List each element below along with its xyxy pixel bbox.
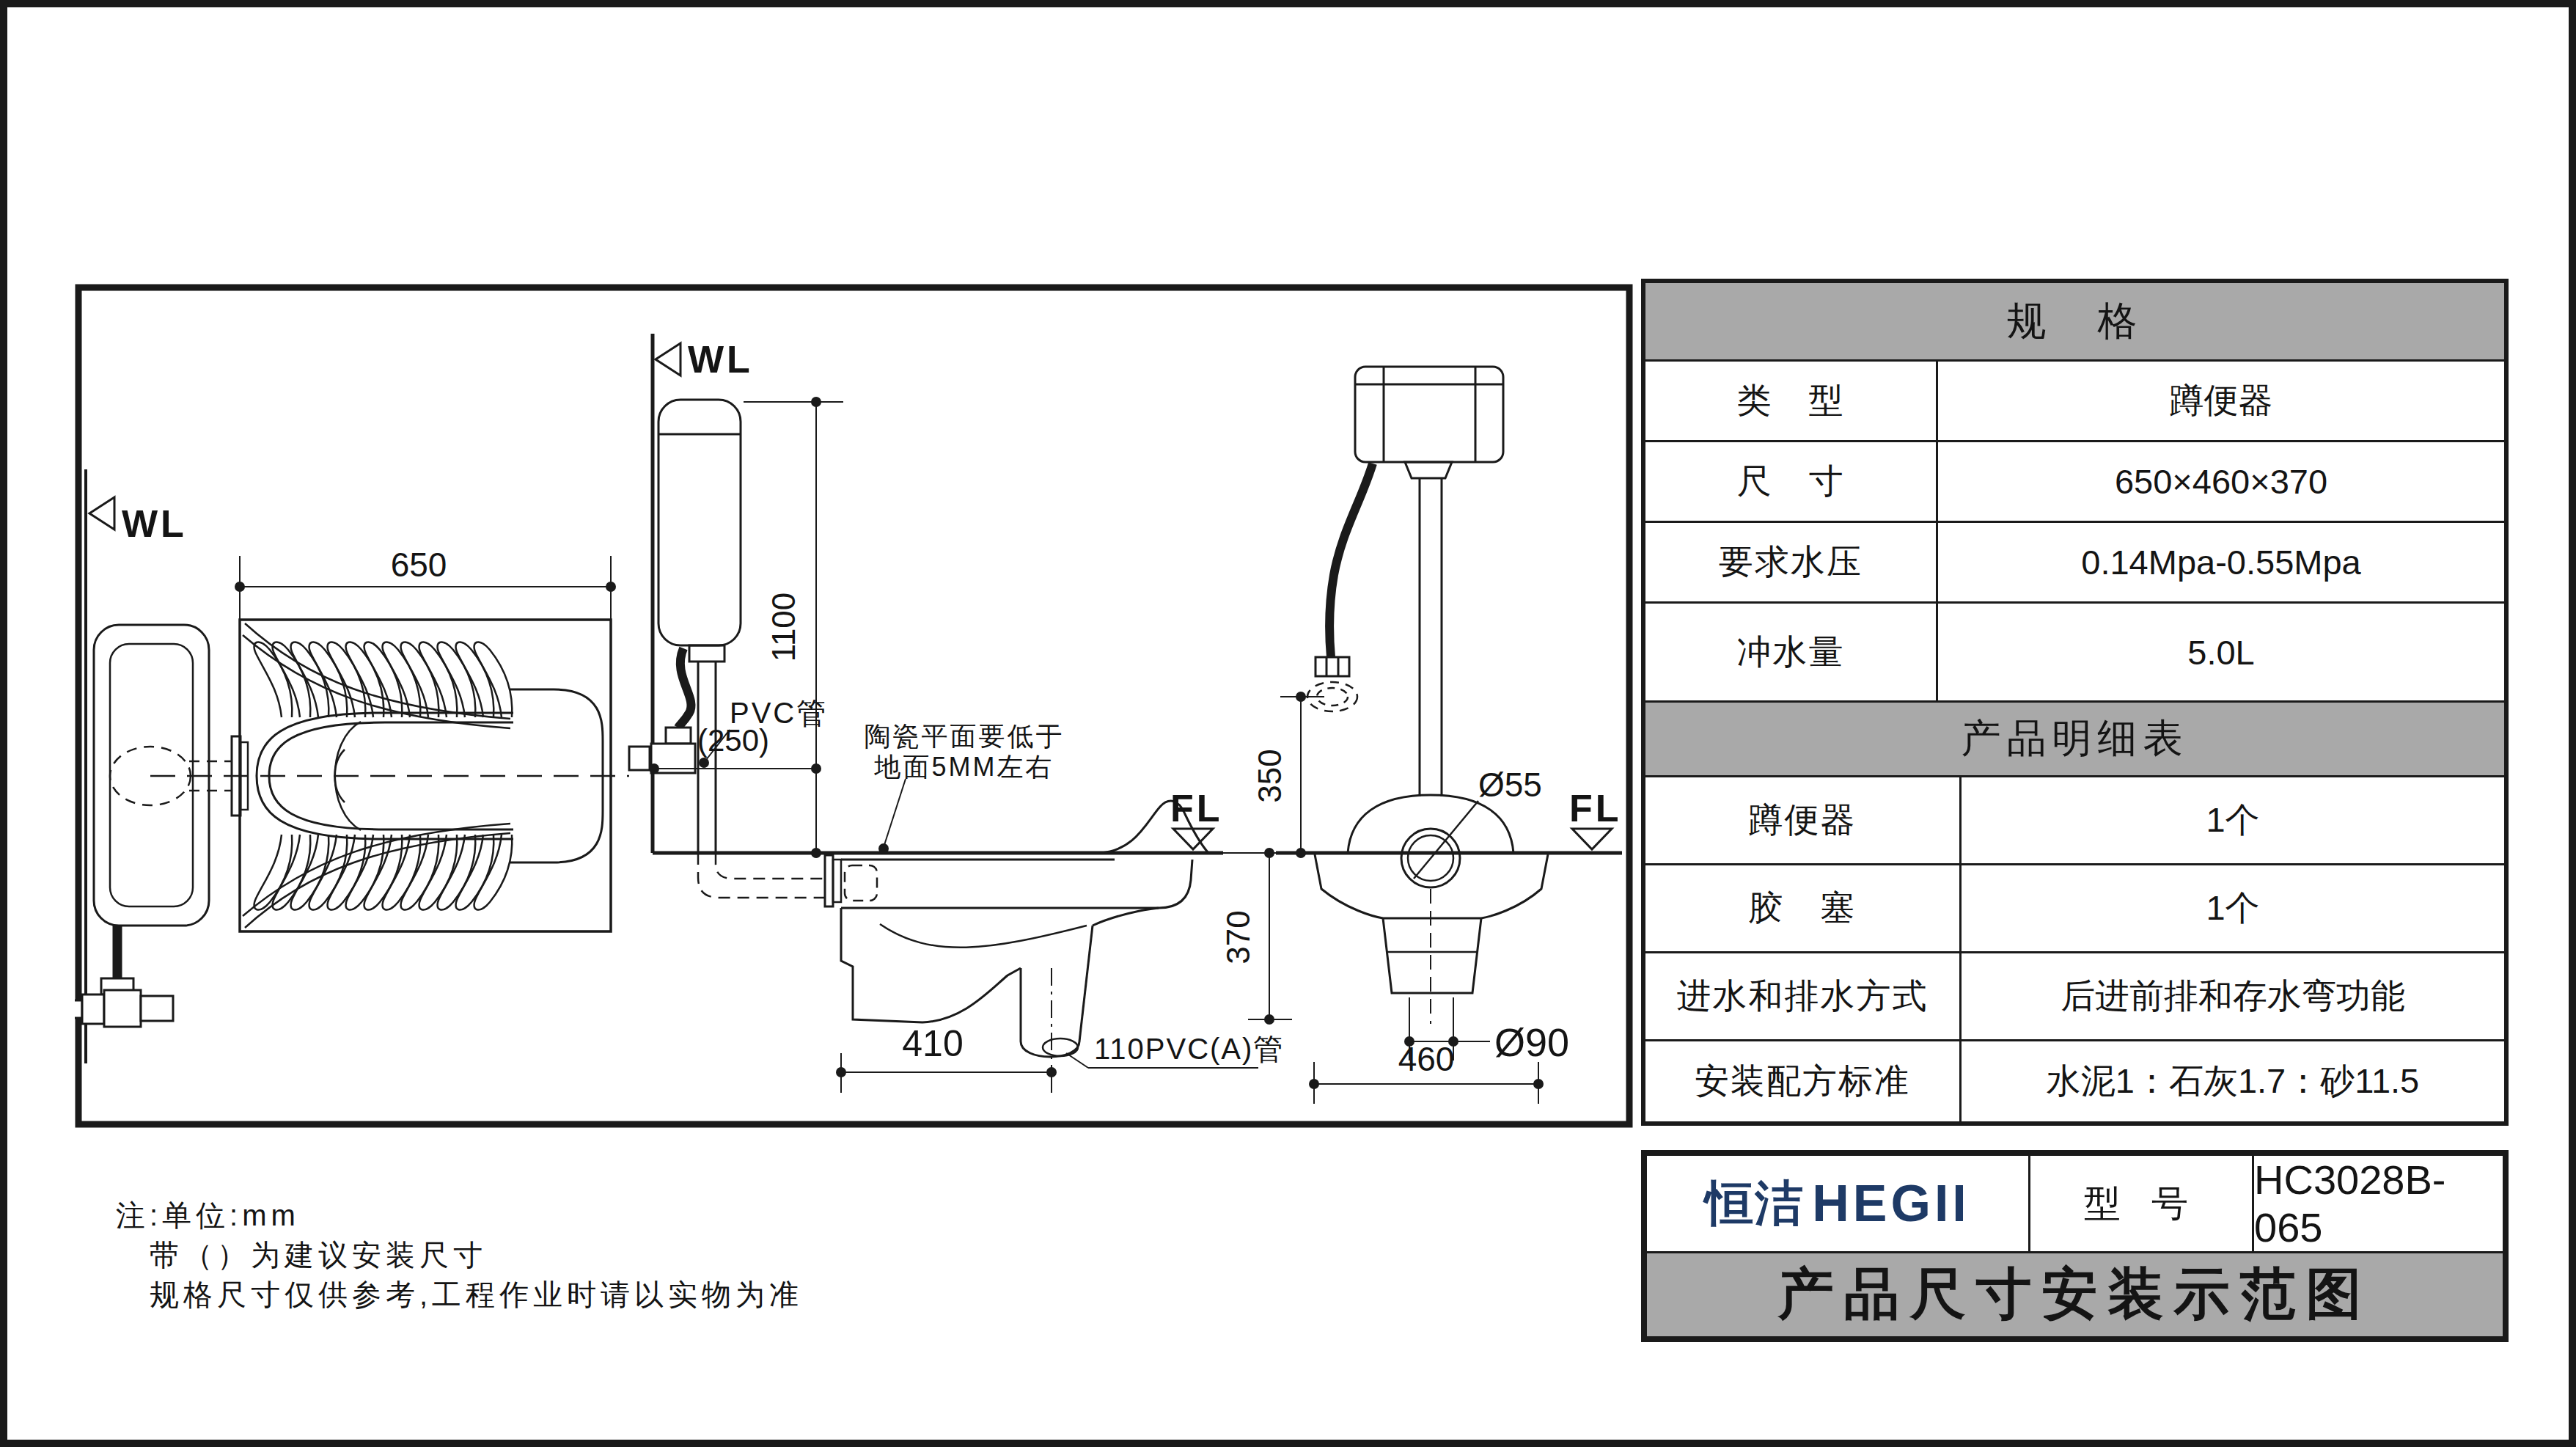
table-row: 尺 寸 650×460×370	[1645, 442, 2504, 523]
title-block: 恒洁 HEGII 型 号 HC3028B-065 产品尺寸安装示范图	[1641, 1150, 2509, 1342]
row-label: 尺 寸	[1645, 442, 1938, 521]
angle-valve-plan	[75, 926, 173, 1027]
spec-table-title: 规 格	[1645, 283, 2504, 362]
ceramic-leader	[884, 779, 906, 845]
wl-marker-icon	[89, 497, 114, 530]
parts-table-title: 产品明细表	[1645, 703, 2504, 777]
dim-90-text: Ø90	[1494, 1020, 1569, 1064]
dim-370-text: 370	[1220, 910, 1256, 964]
dim-1100-text: 1100	[766, 593, 801, 662]
model-number: HC3028B-065	[2254, 1156, 2503, 1251]
ceramic-note-line1: 陶瓷平面要低于	[865, 721, 1065, 751]
row-value: 0.14Mpa-0.55Mpa	[1938, 523, 2504, 601]
model-label: 型 号	[2030, 1156, 2254, 1251]
table-row: 冲水量 5.0L	[1645, 604, 2504, 703]
wl-marker-icon	[656, 343, 680, 376]
spec-table: 规 格 类 型 蹲便器 尺 寸 650×460×370 要求水压 0.14Mpa…	[1641, 279, 2509, 1126]
brand-logo-en: HEGII	[1812, 1174, 1970, 1233]
row-label: 安装配方标准	[1645, 1041, 1962, 1121]
note-line-1: 注:单位:mm	[116, 1195, 803, 1235]
wl-label-side: WL	[688, 338, 753, 381]
wl-label-plan: WL	[122, 502, 187, 545]
dim-650-text: 650	[391, 546, 447, 584]
table-row: 安装配方标准 水泥1：石灰1.7：砂11.5	[1645, 1041, 2504, 1121]
drawing-title: 产品尺寸安装示范图	[1647, 1253, 2503, 1336]
ceramic-note-line2: 地面5MM左右	[874, 752, 1054, 782]
table-row: 类 型 蹲便器	[1645, 362, 2504, 442]
page: WL WL FL FL 650 1100 (250) 350 370 410 4…	[0, 0, 2576, 1447]
row-value: 5.0L	[1938, 604, 2504, 700]
side-view	[629, 334, 1292, 1093]
row-value: 650×460×370	[1938, 442, 2504, 521]
fl-label-side: FL	[1170, 787, 1223, 829]
fl-label-front: FL	[1569, 787, 1622, 829]
row-label: 类 型	[1645, 362, 1938, 440]
front-view	[1276, 367, 1622, 1104]
row-label: 进水和排水方式	[1645, 953, 1962, 1039]
table-row: 蹲便器 1个	[1645, 777, 2504, 865]
row-label: 胶 塞	[1645, 865, 1962, 951]
row-value: 水泥1：石灰1.7：砂11.5	[1962, 1041, 2504, 1121]
pan-front	[1315, 854, 1548, 1024]
brand-logo-cn: 恒洁	[1705, 1171, 1805, 1237]
table-row: 要求水压 0.14Mpa-0.55Mpa	[1645, 523, 2504, 604]
dim-350-text: 350	[1252, 749, 1288, 802]
plan-view	[75, 469, 629, 1063]
note-line-3: 规格尺寸仅供参考,工程作业时请以实物为准	[150, 1275, 803, 1314]
row-value: 后进前排和存水弯功能	[1962, 953, 2504, 1039]
pvc110-pipe-label: 110PVC(A)管	[1094, 1033, 1284, 1065]
fl-marker-icon	[1572, 829, 1612, 849]
row-value: 蹲便器	[1938, 362, 2504, 440]
table-row: 胶 塞 1个	[1645, 865, 2504, 953]
dim-460-text: 460	[1398, 1040, 1455, 1078]
dim-410-text: 410	[902, 1023, 963, 1064]
row-value: 1个	[1962, 865, 2504, 951]
note-line-2: 带（）为建议安装尺寸	[150, 1235, 803, 1275]
row-label: 蹲便器	[1645, 777, 1962, 863]
table-row: 进水和排水方式 后进前排和存水弯功能	[1645, 953, 2504, 1041]
installation-drawing: WL WL FL FL 650 1100 (250) 350 370 410 4…	[75, 284, 1633, 1128]
brand-logo: 恒洁 HEGII	[1647, 1156, 2030, 1251]
d55-leader	[1414, 801, 1478, 879]
row-label: 要求水压	[1645, 523, 1938, 601]
pvc-pipe-label: PVC管	[730, 697, 828, 729]
dim-55-text: Ø55	[1478, 766, 1542, 804]
row-label: 冲水量	[1645, 604, 1938, 700]
row-value: 1个	[1962, 777, 2504, 863]
notes: 注:单位:mm 带（）为建议安装尺寸 规格尺寸仅供参考,工程作业时请以实物为准	[116, 1195, 803, 1314]
